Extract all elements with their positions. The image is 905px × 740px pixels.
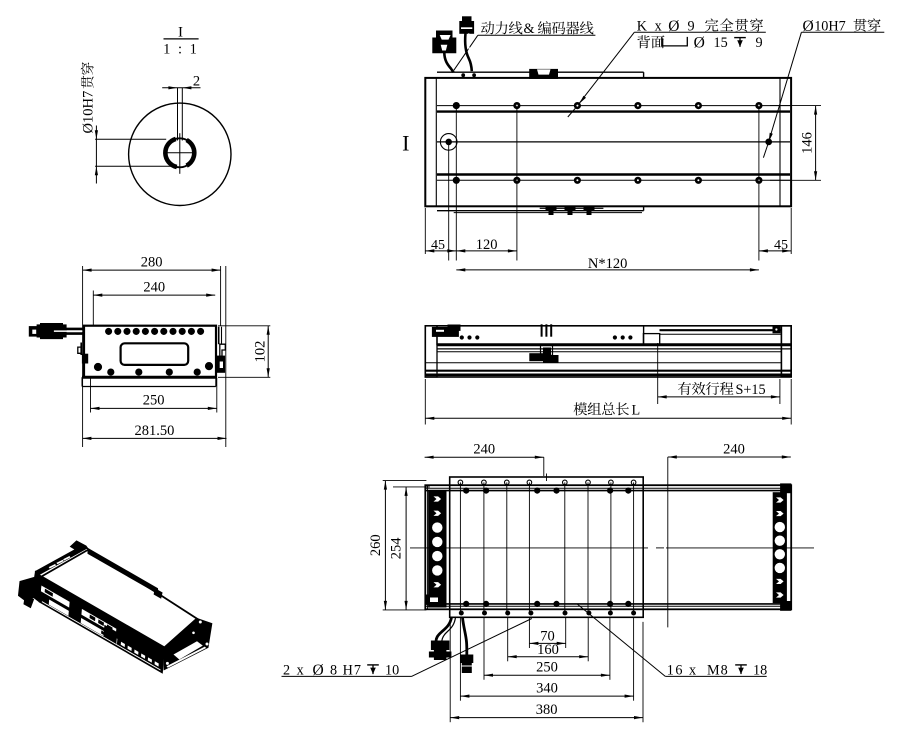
- svg-text:N*120: N*120: [588, 256, 627, 272]
- svg-text:I: I: [402, 131, 409, 156]
- svg-text:240: 240: [473, 442, 495, 458]
- svg-text:280: 280: [141, 255, 163, 271]
- svg-text:I: I: [178, 25, 183, 41]
- svg-text:9: 9: [756, 35, 763, 51]
- svg-text:240: 240: [143, 280, 165, 296]
- svg-text:340: 340: [536, 681, 558, 697]
- svg-text:S+15: S+15: [736, 382, 766, 398]
- svg-text:120: 120: [476, 237, 498, 253]
- svg-text:Ø10H7: Ø10H7: [81, 91, 97, 134]
- svg-text:2: 2: [193, 74, 200, 90]
- svg-text:8 H7: 8 H7: [330, 662, 362, 678]
- svg-text:250: 250: [536, 660, 558, 676]
- svg-text:380: 380: [536, 702, 558, 718]
- svg-text:260: 260: [368, 534, 384, 556]
- svg-text:250: 250: [143, 393, 165, 409]
- svg-text:M8: M8: [707, 662, 729, 678]
- svg-text:254: 254: [388, 537, 404, 560]
- svg-text:45: 45: [774, 238, 788, 253]
- svg-text:16 x: 16 x: [667, 662, 698, 678]
- svg-text:240: 240: [723, 441, 745, 457]
- svg-text:Ø: Ø: [694, 35, 705, 52]
- svg-text:2 x: 2 x: [283, 662, 305, 678]
- svg-text:281.50: 281.50: [135, 423, 175, 439]
- svg-text:160: 160: [537, 642, 559, 658]
- svg-text:15: 15: [714, 35, 728, 51]
- svg-text:18: 18: [753, 662, 767, 678]
- svg-text:146: 146: [800, 132, 816, 154]
- svg-text:45: 45: [431, 238, 445, 253]
- svg-text:102: 102: [252, 341, 268, 363]
- svg-text:L: L: [632, 402, 641, 418]
- svg-text:10: 10: [385, 662, 399, 678]
- svg-text:1 : 1: 1 : 1: [163, 42, 199, 58]
